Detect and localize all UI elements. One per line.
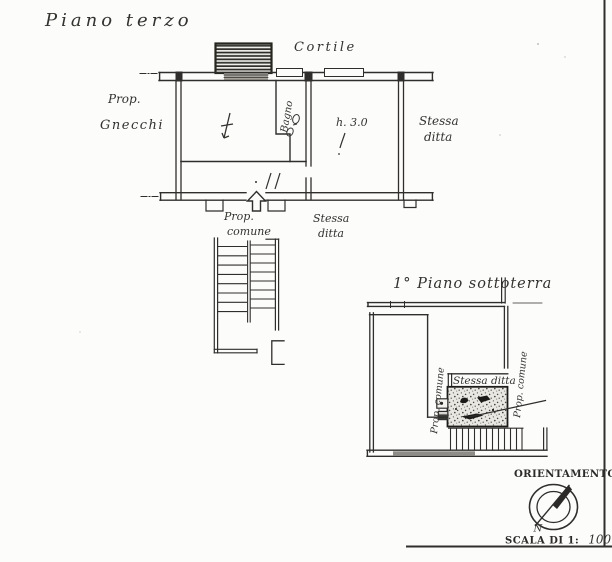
label-stessa-below-2: ditta (318, 227, 344, 240)
entrance-arrow (248, 192, 266, 212)
label-room-height: h. 3.0 (336, 116, 368, 129)
grate-hatch (448, 428, 524, 450)
scale-value: 100 (588, 533, 611, 547)
pilaster-1 (206, 200, 223, 211)
label-cortile: Cortile (294, 40, 357, 55)
scale-label: SCALA DI 1: 100 (505, 531, 611, 548)
window-1 (277, 69, 303, 77)
basement-plan: Stessa ditta Prop. comune Prop. comune (367, 278, 547, 456)
pilaster-2 (268, 200, 285, 211)
label-prop-comune-right: Prop. comune (512, 350, 530, 419)
bottom-wall-fill (393, 451, 475, 456)
label-stessa-ditta-basement: Stessa ditta (453, 375, 516, 387)
room-mark-left (221, 113, 233, 138)
compass-needle (553, 485, 572, 509)
balcony-hatched (216, 44, 272, 74)
plan-sheet: Piano terzo (0, 0, 612, 562)
sheet-border (407, 0, 612, 547)
label-stessa-below-1: Stessa (313, 212, 349, 225)
label-prop-below-1: Prop. (223, 210, 254, 223)
balcony-sill (224, 73, 268, 80)
upper-floor-plan: Cortile Prop. Gnecchi h. 3.0 Stessa ditt… (100, 40, 459, 240)
basement-room-stippled (448, 387, 508, 427)
staircase (214, 238, 284, 364)
north-label: N (533, 524, 544, 535)
pilaster-3 (404, 200, 416, 208)
title-piano-sottoterra: 1° Piano sottoterra (393, 276, 552, 292)
label-prop-below-2: comune (227, 225, 271, 238)
label-stessa-right-1: Stessa (419, 114, 459, 128)
compass: ORIENTAMENTO N SCALA DI 1: 100 (505, 468, 612, 548)
label-prop-left-2: Gnecchi (100, 118, 164, 133)
cadastral-plan-drawing: Piano terzo (0, 0, 612, 562)
stair-steps-right (251, 245, 276, 308)
scale-prefix: SCALA DI 1: (505, 536, 579, 547)
label-stessa-right-2: ditta (424, 130, 452, 144)
label-prop-left-1: Prop. (107, 92, 141, 106)
window-2 (325, 69, 364, 77)
title-piano-terzo: Piano terzo (44, 10, 193, 31)
bottom-wall (160, 193, 433, 201)
orientamento-label: ORIENTAMENTO (514, 468, 612, 480)
stair-steps-left (218, 247, 247, 312)
stair-lower-bracket (272, 341, 284, 365)
